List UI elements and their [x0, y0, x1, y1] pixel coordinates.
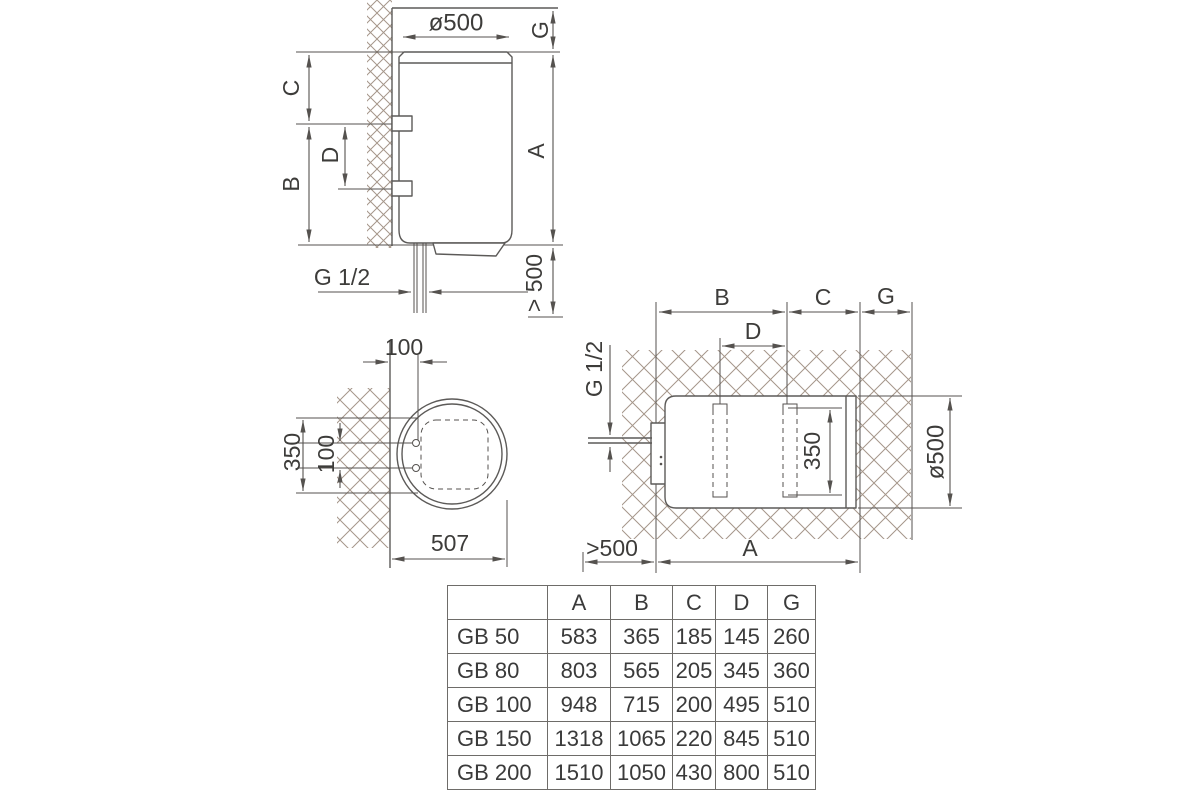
- table-cell: 145: [716, 620, 768, 654]
- model-name: GB 50: [448, 620, 548, 654]
- table-cell: 495: [716, 688, 768, 722]
- dim-label-diameter-horizontal: ø500: [923, 425, 950, 480]
- table-header-row: A B C D G: [448, 586, 816, 620]
- col-header-a: A: [548, 586, 611, 620]
- dim-label-b-horizontal: B: [714, 284, 729, 310]
- dim-label-depth-507: 507: [431, 530, 469, 556]
- table-cell: 185: [673, 620, 716, 654]
- vertical-mount-drawing: ø500 G A C D B G 1/2 > 500: [278, 0, 563, 317]
- table-cell: 345: [716, 654, 768, 688]
- table-cell: 1318: [548, 722, 611, 756]
- table-cell: 800: [716, 756, 768, 790]
- dim-label-offset-100: 100: [385, 334, 423, 360]
- dim-label-thread-horizontal: G 1/2: [581, 341, 607, 397]
- col-header-d: D: [716, 586, 768, 620]
- col-header-g: G: [768, 586, 816, 620]
- dim-label-g-horizontal: G: [877, 283, 895, 309]
- table-cell: 1050: [611, 756, 673, 790]
- bottom-cover: [433, 243, 505, 256]
- table-cell: 200: [673, 688, 716, 722]
- dim-label-c-horizontal: C: [815, 284, 832, 310]
- tank-body-front: [399, 52, 512, 243]
- table-cell: 565: [611, 654, 673, 688]
- table-cell: 1510: [548, 756, 611, 790]
- table-row: GB 200 1510 1050 430 800 510: [448, 756, 816, 790]
- col-header-b: B: [611, 586, 673, 620]
- connection-pipes: [414, 243, 426, 313]
- model-name: GB 80: [448, 654, 548, 688]
- table-cell: 715: [611, 688, 673, 722]
- table-cell: 510: [768, 722, 816, 756]
- table-cell: 1065: [611, 722, 673, 756]
- dim-label-a-front: A: [523, 143, 549, 159]
- dim-label-g-front: G: [527, 21, 553, 39]
- table-cell: 260: [768, 620, 816, 654]
- dim-label-diameter-front: ø500: [429, 10, 484, 37]
- mount-hole-upper: [413, 440, 420, 447]
- dimensions-table: A B C D G GB 50 583 365 185 145 260 GB 8…: [447, 585, 816, 790]
- table-row: GB 100 948 715 200 495 510: [448, 688, 816, 722]
- model-name: GB 150: [448, 722, 548, 756]
- dim-label-d-front: D: [317, 147, 343, 164]
- mount-hole-lower: [413, 465, 420, 472]
- table-cell: 430: [673, 756, 716, 790]
- table-cell: 510: [768, 756, 816, 790]
- table-corner-cell: [448, 586, 548, 620]
- tank-body-horizontal: [665, 396, 856, 508]
- dim-label-a-horizontal: A: [742, 535, 758, 561]
- table-row: GB 150 1318 1065 220 845 510: [448, 722, 816, 756]
- table-cell: 845: [716, 722, 768, 756]
- table-row: GB 80 803 565 205 345 360: [448, 654, 816, 688]
- top-view-drawing: 100 350 100 507: [279, 334, 507, 568]
- table-cell: 365: [611, 620, 673, 654]
- dim-label-clearance-front: > 500: [521, 254, 547, 312]
- table-cell: 583: [548, 620, 611, 654]
- dim-label-holes-100: 100: [313, 435, 339, 473]
- dim-label-d-horizontal: D: [745, 318, 762, 344]
- table-cell: 948: [548, 688, 611, 722]
- horizontal-mount-drawing: B C G D G 1/2 350 ø500 >500 A: [581, 283, 962, 573]
- model-name: GB 200: [448, 756, 548, 790]
- dim-label-span-350: 350: [279, 433, 305, 471]
- model-name: GB 100: [448, 688, 548, 722]
- lower-bracket: [392, 181, 412, 196]
- table-cell: 803: [548, 654, 611, 688]
- dim-label-thread-front: G 1/2: [314, 264, 370, 290]
- table-cell: 360: [768, 654, 816, 688]
- table-cell: 220: [673, 722, 716, 756]
- dim-label-clearance-horizontal: >500: [586, 535, 638, 561]
- dim-label-b-front: B: [278, 176, 304, 191]
- dim-label-span-horizontal: 350: [799, 432, 825, 470]
- upper-bracket: [392, 116, 412, 131]
- table-row: GB 50 583 365 185 145 260: [448, 620, 816, 654]
- table-cell: 205: [673, 654, 716, 688]
- table-cell: 510: [768, 688, 816, 722]
- col-header-c: C: [673, 586, 716, 620]
- diagram-page: ø500 G A C D B G 1/2 > 500 100 350 100 5…: [0, 0, 1200, 800]
- dim-label-c-front: C: [278, 80, 304, 97]
